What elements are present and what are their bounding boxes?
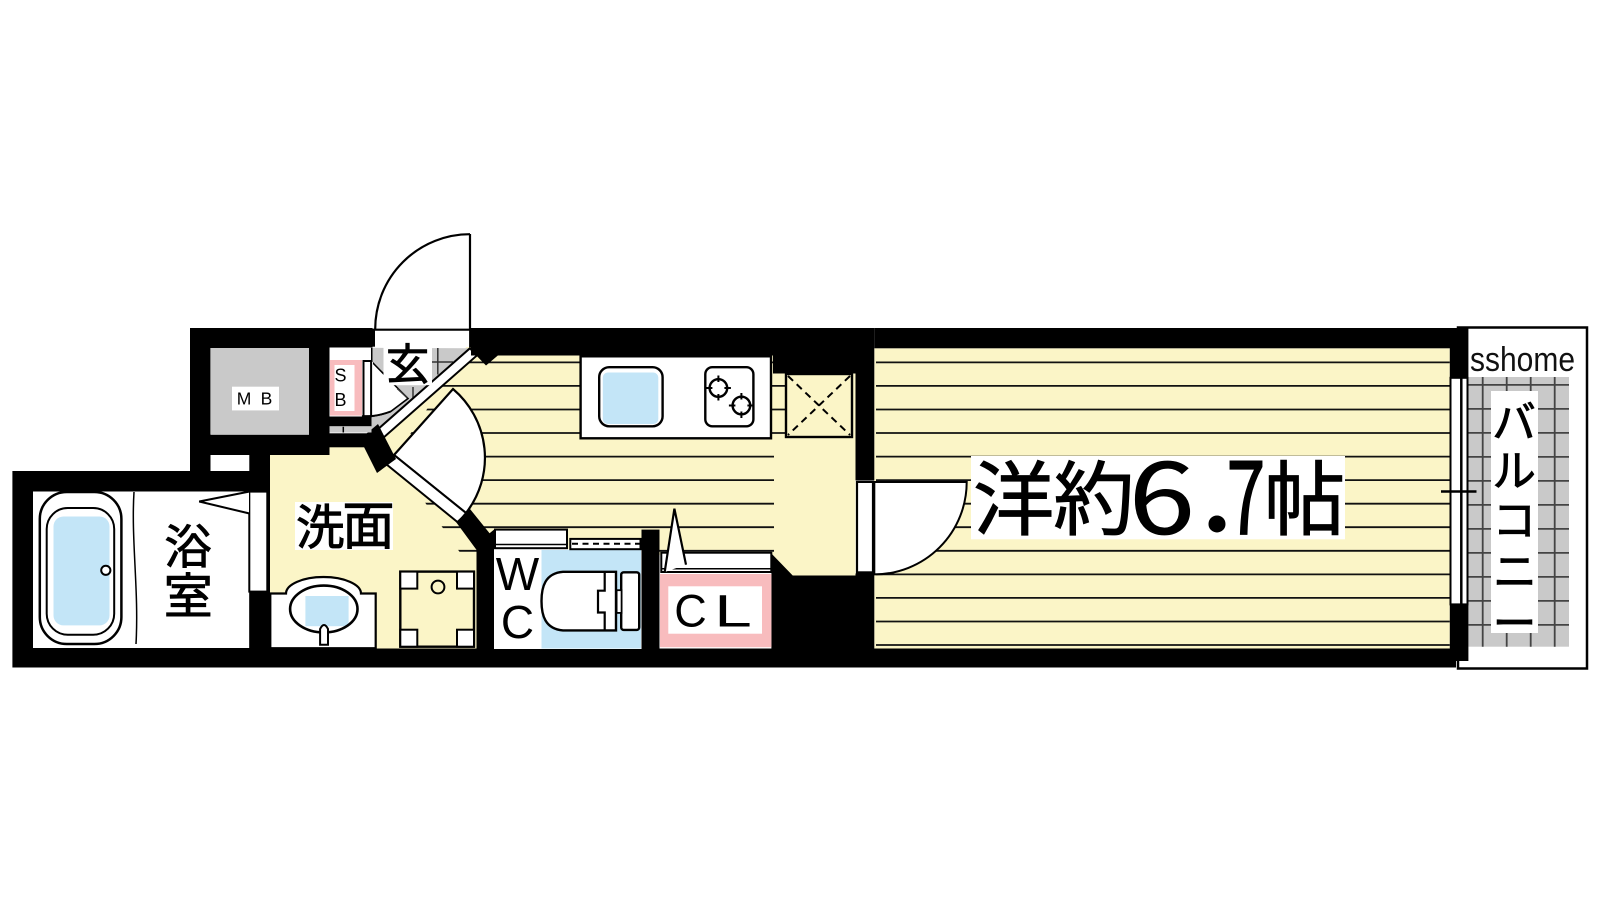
svg-text:C: C [674, 586, 707, 637]
svg-text:M: M [237, 389, 252, 409]
svg-text:W: W [496, 548, 540, 600]
svg-text:B: B [261, 389, 273, 409]
svg-text:B: B [334, 390, 346, 410]
svg-text:C: C [501, 596, 534, 648]
svg-text:sshome: sshome [1470, 341, 1575, 379]
svg-text:S: S [334, 366, 346, 386]
svg-text:L: L [714, 586, 752, 636]
